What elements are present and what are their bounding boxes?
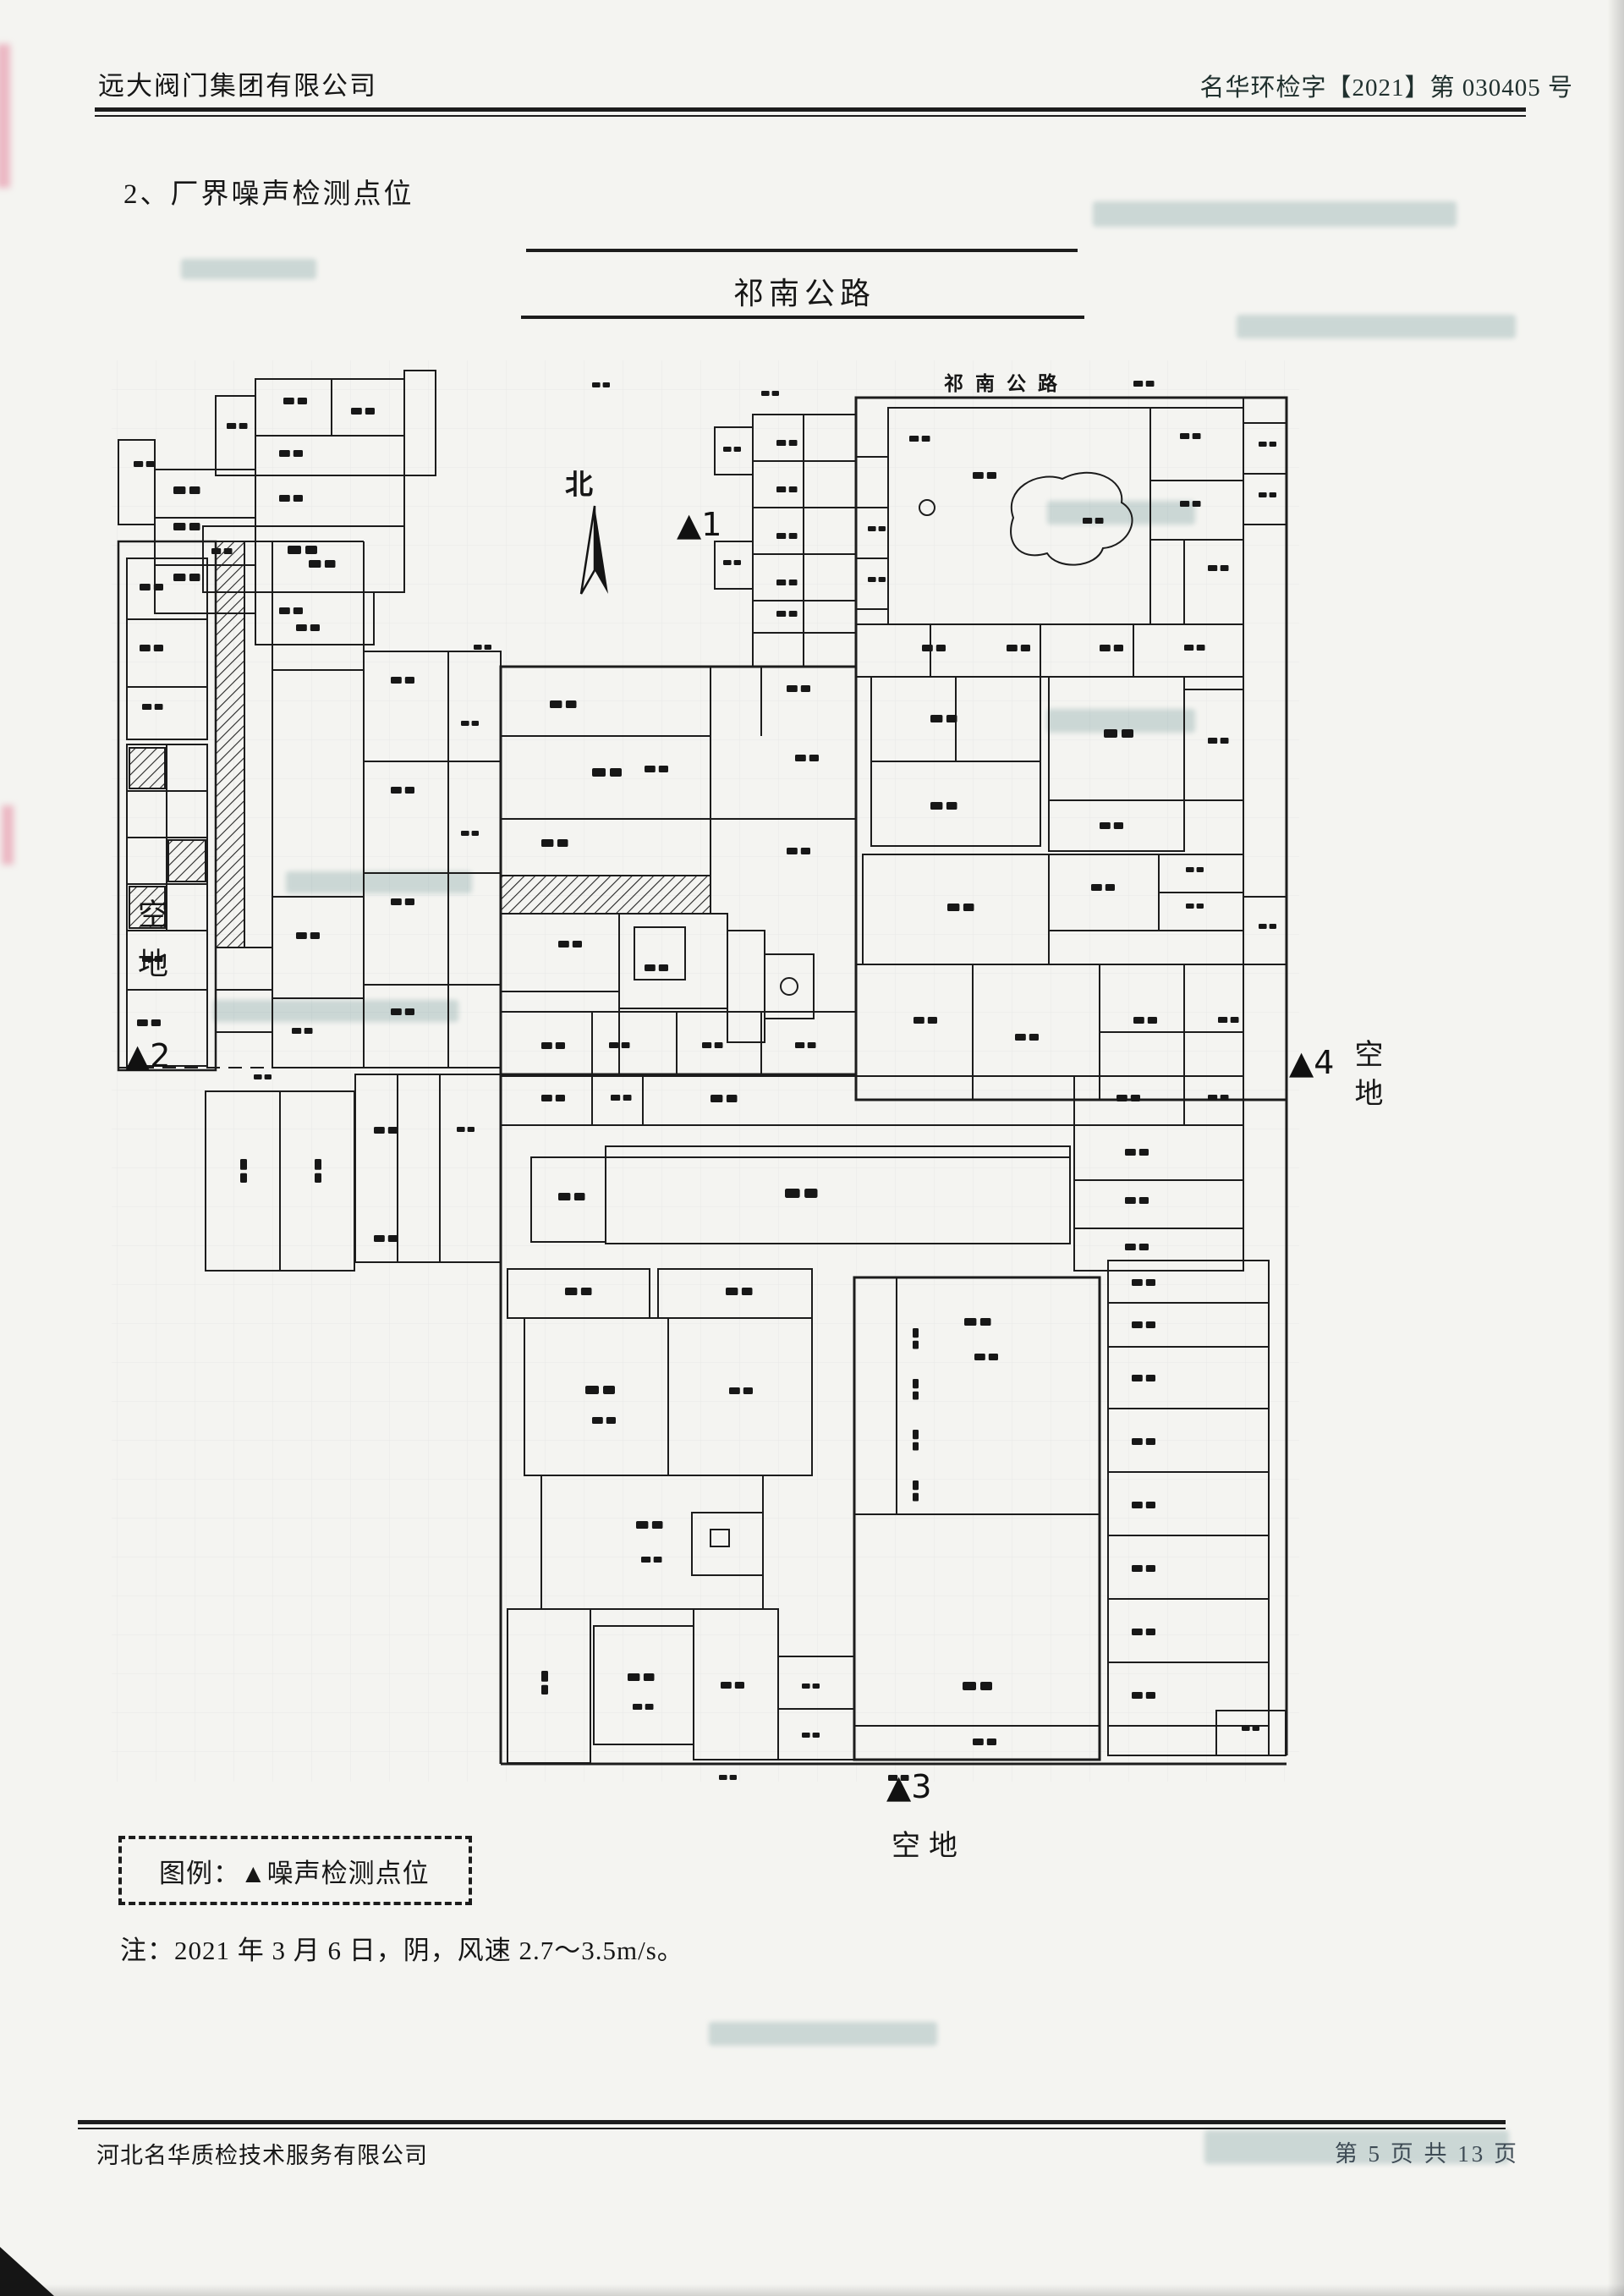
footer-page-info: 第 5 页 共 13 页	[1201, 2135, 1519, 2168]
noise-point-marker-4: ▲4	[1289, 1044, 1334, 1081]
north-label: 北	[565, 462, 593, 503]
noise-point-marker-2: ▲2	[125, 1037, 170, 1074]
legend-box: 图例：▲噪声检测点位	[118, 1836, 472, 1905]
noise-point-marker-1: ▲1	[677, 506, 721, 543]
plan-grid-texture	[112, 360, 1299, 1782]
scanned-report-page: 远大阀门集团有限公司 名华环检字【2021】第 030405 号 2、厂界噪声检…	[0, 0, 1624, 2296]
road-name-in-plan: 祁南公路	[944, 367, 1069, 396]
survey-note: 注：2021 年 3 月 6 日，阴，风速 2.7～3.5m/s。	[120, 1929, 684, 1967]
vacant-land-label-right: 空地	[1345, 1039, 1386, 1117]
noise-point-marker-3: ▲3	[886, 1768, 931, 1805]
vacant-land-label-left: 空地	[129, 898, 173, 997]
footer-company-name: 河北名华质检技术服务有限公司	[96, 2137, 428, 2170]
legend-text: 图例：▲噪声检测点位	[122, 1852, 430, 1890]
footer-rule	[78, 2120, 1506, 2129]
vacant-land-label-bottom: 空地	[892, 1822, 966, 1864]
